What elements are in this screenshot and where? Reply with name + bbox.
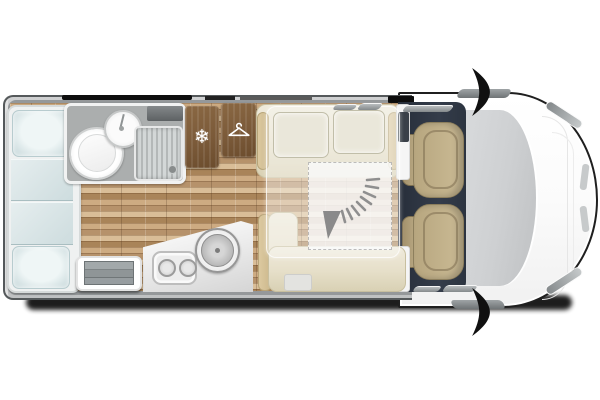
drop-down-bed-pillow (333, 110, 385, 154)
fridge-freezer: ❄ (185, 106, 219, 168)
rear-bed-pillow (12, 246, 70, 289)
wardrobe (221, 103, 256, 157)
sink-drain (215, 248, 220, 253)
drop-down-bed-panel (308, 162, 392, 250)
cab-door-window (402, 105, 455, 112)
seat-stitching (423, 212, 458, 271)
roof-fitting (240, 97, 312, 100)
cab-door-window (412, 286, 442, 292)
burner-icon (158, 259, 176, 277)
rear-bed-pillow (12, 110, 70, 157)
door-swing-arrow-icon (465, 288, 497, 336)
bathroom-shelf (147, 106, 183, 121)
passenger-seat (402, 204, 464, 280)
hanger-icon (227, 122, 251, 139)
burner-icon (179, 259, 197, 277)
door-swing-arrow-icon (465, 68, 497, 116)
hood-crease-line (552, 132, 574, 284)
shower-drain (168, 165, 177, 174)
rear-bed-cushion (11, 202, 73, 245)
drop-down-arrow-icon (309, 163, 393, 251)
windshield (458, 110, 536, 286)
snowflake-icon: ❄ (194, 128, 210, 147)
roof-fitting (205, 96, 235, 100)
dinette-table (284, 274, 312, 291)
faucet-icon (119, 126, 124, 131)
motorhome-floorplan: ❄ (0, 0, 600, 400)
driver-seat (402, 122, 464, 198)
entry-step-treads (84, 261, 134, 285)
seat-stitching (423, 130, 458, 189)
drop-down-bed-pillow (273, 112, 329, 158)
shower-tray (134, 126, 183, 181)
awning-rail (62, 95, 192, 100)
